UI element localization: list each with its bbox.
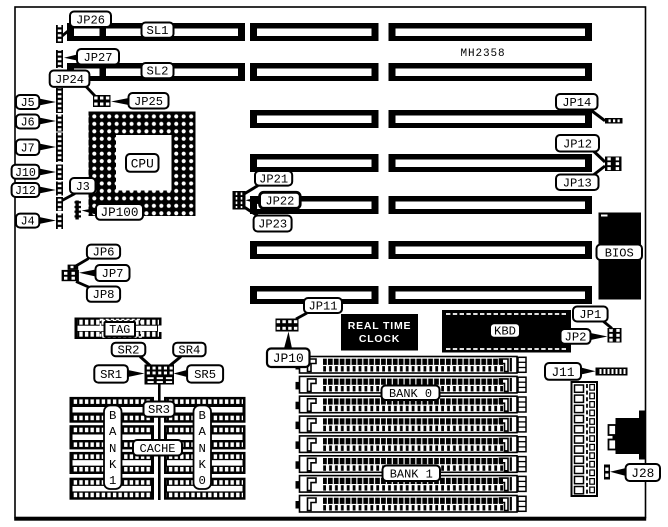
svg-text:SL2: SL2 <box>147 65 169 79</box>
svg-text:TAG: TAG <box>109 324 130 337</box>
svg-text:SR5: SR5 <box>194 368 216 382</box>
svg-text:JP100: JP100 <box>101 206 139 220</box>
svg-text:JP22: JP22 <box>265 194 294 208</box>
svg-text:BIOS: BIOS <box>605 246 634 260</box>
svg-text:JP23: JP23 <box>258 218 287 232</box>
svg-text:JP13: JP13 <box>563 176 592 190</box>
svg-text:K: K <box>109 458 117 472</box>
svg-text:CACHE: CACHE <box>140 442 176 456</box>
svg-text:JP26: JP26 <box>76 13 105 27</box>
svg-text:SL1: SL1 <box>147 24 169 38</box>
svg-text:BANK 1: BANK 1 <box>390 467 433 481</box>
svg-text:JP6: JP6 <box>93 246 115 260</box>
svg-text:SR4: SR4 <box>178 344 200 358</box>
svg-text:J7: J7 <box>21 141 35 155</box>
svg-text:B: B <box>199 409 206 423</box>
svg-text:CPU: CPU <box>131 156 154 171</box>
svg-text:J3: J3 <box>76 180 90 194</box>
svg-text:1: 1 <box>109 474 116 488</box>
svg-text:JP25: JP25 <box>134 95 163 109</box>
svg-text:J10: J10 <box>15 166 36 180</box>
svg-text:KBD: KBD <box>494 325 516 339</box>
svg-text:JP21: JP21 <box>259 172 288 186</box>
svg-text:J5: J5 <box>21 96 35 110</box>
svg-text:JP10: JP10 <box>273 351 304 366</box>
svg-text:J28: J28 <box>631 466 654 481</box>
svg-text:J12: J12 <box>15 184 36 198</box>
svg-text:A: A <box>199 425 207 439</box>
svg-text:JP11: JP11 <box>309 300 338 314</box>
svg-text:JP7: JP7 <box>102 267 124 281</box>
svg-text:JP1: JP1 <box>579 308 601 322</box>
svg-text:JP2: JP2 <box>565 331 587 345</box>
svg-text:CLOCK: CLOCK <box>359 333 400 345</box>
svg-text:JP24: JP24 <box>55 73 84 87</box>
svg-text:N: N <box>109 442 116 456</box>
svg-text:JP14: JP14 <box>562 96 591 110</box>
svg-text:K: K <box>199 458 207 472</box>
svg-text:REAL TIME: REAL TIME <box>348 320 412 332</box>
svg-text:J6: J6 <box>21 116 35 130</box>
svg-text:SR3: SR3 <box>148 403 170 417</box>
svg-text:0: 0 <box>199 474 206 488</box>
svg-text:BANK 0: BANK 0 <box>389 387 432 401</box>
svg-text:SR1: SR1 <box>100 368 122 382</box>
svg-text:MH2358: MH2358 <box>461 48 506 60</box>
svg-text:SR2: SR2 <box>118 344 140 358</box>
svg-text:JP27: JP27 <box>84 51 113 65</box>
svg-text:JP8: JP8 <box>93 288 115 302</box>
svg-text:B: B <box>109 409 116 423</box>
svg-text:JP12: JP12 <box>563 137 592 151</box>
svg-text:A: A <box>109 425 117 439</box>
svg-text:N: N <box>199 442 206 456</box>
svg-text:J4: J4 <box>21 215 35 229</box>
svg-text:J11: J11 <box>552 365 575 380</box>
